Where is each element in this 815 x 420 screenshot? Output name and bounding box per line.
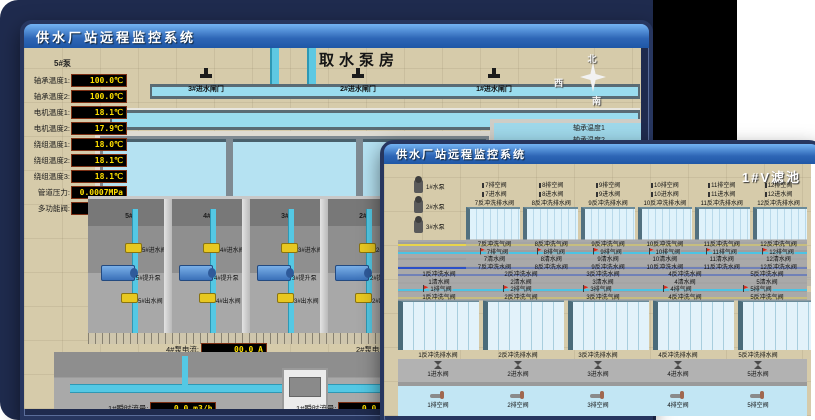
filter-cell [466,207,520,240]
pump-readout-panel: 5#泵 轴承温度1: 100.0℃ 轴承温度2: 100.0℃ 电机温度1: 1… [26,58,130,218]
readout-value: 18.0℃ [71,138,127,151]
gate-valve-icon [352,74,364,78]
lift-pump-label: 3#提升泵 [292,273,317,282]
outlet-valve-label: 5#出水阀 [138,296,163,305]
lift-pump-icon[interactable] [101,265,135,281]
drain-valve-label[interactable]: 9排空阀 [580,180,637,189]
valve-gallery: 7反冲洗气阀8反冲洗气阀9反冲洗气阀10反冲洗气阀11反冲洗气阀12反冲洗气阀 … [398,240,807,300]
compass-south-label: 南 [592,94,601,107]
filter-cell [753,207,807,240]
bent-pipe-icon [670,391,686,400]
readout-label: 轴承温度2: [26,91,70,102]
inlet-valve-label: 4#进水阀 [220,245,245,254]
compass-icon [580,62,606,92]
inlet-valve-label: 5进水阀 [747,369,768,378]
drain-valve-label[interactable]: 8排空阀 [523,180,580,189]
filter-cell [568,300,649,350]
readout-row: 绕组温度1: 18.0℃ [26,138,130,151]
backwash-pump[interactable]: 2#水泵 [384,196,466,216]
bent-pipe-icon [750,391,766,400]
gate-valve-icon [200,74,212,78]
readout-label: 绕组温度1: [26,139,70,150]
clear-water-valve-label[interactable]: 6清水阀 [808,277,811,286]
compass: 北 西 南 [552,54,641,112]
drain-valve-label[interactable]: 7排空阀 [466,180,523,189]
readout-value: 100.0℃ [71,74,127,87]
readout-row: 轴承温度1: 100.0℃ [26,74,130,87]
backwash-drain-valve-label[interactable]: 5反冲洗排水阀 [718,350,798,359]
readout-row: 绕组温度2: 18.1℃ [26,154,130,167]
inlet-valve[interactable]: 2进水阀 [478,359,558,382]
bottom-backwash-air-row: 1反冲洗气阀2反冲洗气阀3反冲洗气阀4反冲洗气阀5反冲洗气阀6反冲洗气阀 [398,293,807,301]
backwash-air-valve-label[interactable]: 2反冲洗气阀 [480,292,562,301]
filter-cell [483,300,564,350]
backwash-drain-valve-label[interactable]: 10反冲洗排水阀 [636,198,693,207]
backwash-air-valve-label[interactable]: 5反冲洗气阀 [726,292,808,301]
backwash-drain-valve-label[interactable]: 12反冲洗排水阀 [750,198,807,207]
drain-valve-label: 4排空阀 [667,400,688,409]
lift-pump-icon[interactable] [257,265,291,281]
drain-valve[interactable]: 3排空阀 [558,386,638,416]
top-backwash-drain-row: 7反冲洗排水阀8反冲洗排水阀9反冲洗排水阀10反冲洗排水阀11反冲洗排水阀12反… [466,198,807,207]
lift-pump-label: 5#提升泵 [136,273,161,282]
gate-label: 1#进水闸门 [476,86,512,93]
inlet-valve-icon[interactable] [281,243,298,253]
readout-label: 绕组温度3: [26,171,70,182]
outlet-valve-icon[interactable] [199,293,216,303]
bent-pipe-icon [510,391,526,400]
pump-bay: 5# 5#进水阀 5#提升泵 5#出水阀 [94,199,164,334]
outlet-valve-icon[interactable] [355,293,372,303]
selected-pump-label[interactable]: 5#泵 [54,58,130,69]
backwash-drain-valve-label[interactable]: 8反冲洗排水阀 [523,198,580,207]
drain-valve-label: 5排空阀 [747,400,768,409]
readout-label: 多功能阀: [26,203,70,214]
readout-list: 轴承温度1: 100.0℃ 轴承温度2: 100.0℃ 电机温度1: 18.1℃… [26,74,130,215]
inlet-channel: 1排空阀 2排空阀 3排空阀 4排空阀 5排空阀 6排空阀 [398,382,807,416]
inlet-gate[interactable]: 1#进水闸门 [452,74,536,96]
readout-value: 100.0℃ [71,90,127,103]
readout-label: 电机温度1: [26,107,70,118]
backwash-pumps: 1#水泵 2#水泵 3#水泵 [384,176,466,236]
inlet-valve-label: 1进水阀 [427,369,448,378]
screenshot-stage: 供水厂站远程监控系统 取水泵房 3#进水闸门 2#进水闸门 1#进水闸门 [0,0,815,420]
inlet-gate[interactable]: 3#进水闸门 [164,74,248,96]
backwash-drain-valve-label[interactable]: 1反冲洗排水阀 [398,350,478,359]
outlet-valve-icon[interactable] [277,293,294,303]
valve-icon [594,361,602,369]
filter-pool-scene: 1#V滤池 1#水泵 2#水泵 3#水泵 [384,164,811,416]
gate-label: 2#进水闸门 [340,86,376,93]
inlet-valve[interactable]: 6进水阀 [798,359,811,382]
bottom-backwash-drain-row: 1反冲洗排水阀2反冲洗排水阀3反冲洗排水阀4反冲洗排水阀5反冲洗排水阀6反冲洗排… [398,350,807,359]
backwash-drain-valve-label[interactable]: 11反冲洗排水阀 [693,198,750,207]
backwash-drain-valve-label[interactable]: 3反冲洗排水阀 [558,350,638,359]
backwash-drain-valve-label[interactable]: 6反冲洗排水阀 [798,350,811,359]
filter-cell [523,207,577,240]
inlet-valve-label: 4进水阀 [667,369,688,378]
drain-valve-label: 3排空阀 [587,400,608,409]
bottom-filter-cells [398,300,807,350]
inlet-valve-label: 2进水阀 [507,369,528,378]
drain-valve-label: 2排空阀 [507,400,528,409]
top-drain-valve-row: 7排空阀8排空阀9排空阀10排空阀11排空阀12排空阀 [466,180,807,189]
outlet-valve-label: 3#出水阀 [294,296,319,305]
readout-value: 18.1℃ [71,106,127,119]
readout-row: 轴承温度2: 100.0℃ [26,90,130,103]
filter-cell [653,300,734,350]
inlet-valve-icon[interactable] [125,243,142,253]
inlet-valve[interactable]: 4进水阀 [638,359,718,382]
inlet-valve[interactable]: 3进水阀 [558,359,638,382]
readout-value: 18.1℃ [71,154,127,167]
outlet-valve-icon[interactable] [121,293,138,303]
compass-west-label: 西 [554,76,563,89]
readout-value: 17.9℃ [71,122,127,135]
valve-icon [754,361,762,369]
backwash-air-valve-label[interactable]: 1反冲洗气阀 [398,292,480,301]
backwash-drain-valve-label[interactable]: 9反冲洗排水阀 [580,198,637,207]
valve-icon [514,361,522,369]
filter-cell [695,207,749,240]
filter-cell [738,300,811,350]
filter-cell [581,207,635,240]
pump-room: 5# 5#进水阀 5#提升泵 5#出水阀 4# 4#进水阀 [88,196,430,334]
valve-icon [674,361,682,369]
bay-id-label: 3# [250,213,320,220]
bent-pipe-icon [590,391,606,400]
side-readout-label: 轴承温度1 [573,123,605,135]
bay-id-label: 4# [172,213,242,220]
backwash-air-valve-label[interactable]: 3反冲洗气阀 [562,292,644,301]
inlet-gate[interactable]: 2#进水闸门 [316,74,400,96]
lift-pump-icon[interactable] [179,265,213,281]
backwash-pump[interactable]: 1#水泵 [384,176,466,196]
bottom-inlet-band: 1进水阀 2进水阀 3进水阀 4进水阀 5进水阀 6进水阀 [398,359,807,382]
inlet-valve-label[interactable]: 8进水阀 [523,189,580,198]
pump-icon [414,180,423,193]
inlet-valve-label[interactable]: 7进水阀 [466,189,523,198]
pump-label: 1#水泵 [426,182,445,191]
cabinet-device-icon [289,377,321,397]
pump-bay: 4# 4#进水阀 4#提升泵 4#出水阀 [172,199,242,334]
bent-pipe-icon [430,391,446,400]
inlet-valve-label: 3进水阀 [587,369,608,378]
backwash-drain-valve-label[interactable]: 2反冲洗排水阀 [478,350,558,359]
drain-valve[interactable]: 4排空阀 [638,386,718,416]
backwash-air-valve-label[interactable]: 6反冲洗气阀 [808,292,811,301]
backwash-air-valve-label[interactable]: 4反冲洗气阀 [644,292,726,301]
drain-valve-label[interactable]: 11排空阀 [693,180,750,189]
backwash-drain-valve-label[interactable]: 4反冲洗排水阀 [638,350,718,359]
back-window-titlebar[interactable]: 供水厂站远程监控系统 [24,24,649,48]
lift-pump-label: 4#提升泵 [214,273,239,282]
readout-label: 电机温度2: [26,123,70,134]
drain-valve[interactable]: 5排空阀 [718,386,798,416]
drain-valve-label[interactable]: 10排空阀 [636,180,693,189]
filter-pool-window: 供水厂站远程监控系统 1#V滤池 1#水泵 2#水泵 3#水泵 [380,140,815,420]
back-window-title: 供水厂站远程监控系统 [36,27,196,46]
inlet-valve[interactable]: 5进水阀 [718,359,798,382]
readout-label: 轴承温度1: [26,75,70,86]
readout-row: 电机温度2: 17.9℃ [26,122,130,135]
front-window-title: 供水厂站远程监控系统 [396,146,526,162]
compass-north-label: 北 [572,52,612,65]
readout-label: 管道压力: [26,187,70,198]
drain-valve-label[interactable]: 12排空阀 [750,180,807,189]
inlet-valve-icon[interactable] [359,243,376,253]
readout-row: 电机温度1: 18.1℃ [26,106,130,119]
outlet-valve-label: 4#出水阀 [216,296,241,305]
pump-label: 2#水泵 [426,202,445,211]
drain-valve[interactable]: 6排空阀 [798,386,811,416]
inlet-valve-label[interactable]: 12进水阀 [750,189,807,198]
valve-icon [434,361,442,369]
pump-icon [414,220,423,233]
drain-valve[interactable]: 2排空阀 [478,386,558,416]
inlet-valve-label: 5#进水阀 [142,245,167,254]
drain-valve[interactable]: 1排空阀 [398,386,478,416]
backwash-pump[interactable]: 3#水泵 [384,216,466,236]
flow-meter: 1#瞬时流量:0.0 m3/h [108,398,216,409]
gate-label: 3#进水闸门 [188,86,224,93]
inlet-valve[interactable]: 1进水阀 [398,359,478,382]
drain-valve-label: 1排空阀 [427,400,448,409]
front-window-titlebar[interactable]: 供水厂站远程监控系统 [384,144,815,164]
inlet-valve-label[interactable]: 10进水阀 [636,189,693,198]
top-filter-cells [466,207,807,240]
meter-label: 1#瞬时流量: [108,404,148,409]
pipe-stub [182,356,188,386]
tank-cell [233,139,356,197]
inlet-valve-label: 3#进水阀 [298,245,323,254]
top-inlet-valve-row: 7进水阀8进水阀9进水阀10进水阀11进水阀12进水阀 [466,189,807,198]
inlet-valve-label[interactable]: 9进水阀 [580,189,637,198]
pump-bay: 3# 3#进水阀 3#提升泵 3#出水阀 [250,199,320,334]
inlet-valve-icon[interactable] [203,243,220,253]
readout-value: 18.1℃ [71,170,127,183]
filter-cell [398,300,479,350]
bay-id-label: 5# [94,213,164,220]
meter-label: 1#瞬时流量: [296,404,336,409]
filter-cell [638,207,692,240]
inlet-valve-label[interactable]: 11进水阀 [693,189,750,198]
meter-value: 0.0 m3/h [150,402,216,409]
readout-label: 绕组温度2: [26,155,70,166]
gate-valve-icon [488,74,500,78]
lift-pump-icon[interactable] [335,265,369,281]
pump-icon [414,200,423,213]
readout-row: 绕组温度3: 18.1℃ [26,170,130,183]
backwash-drain-valve-label[interactable]: 7反冲洗排水阀 [466,198,523,207]
pump-label: 3#水泵 [426,222,445,231]
